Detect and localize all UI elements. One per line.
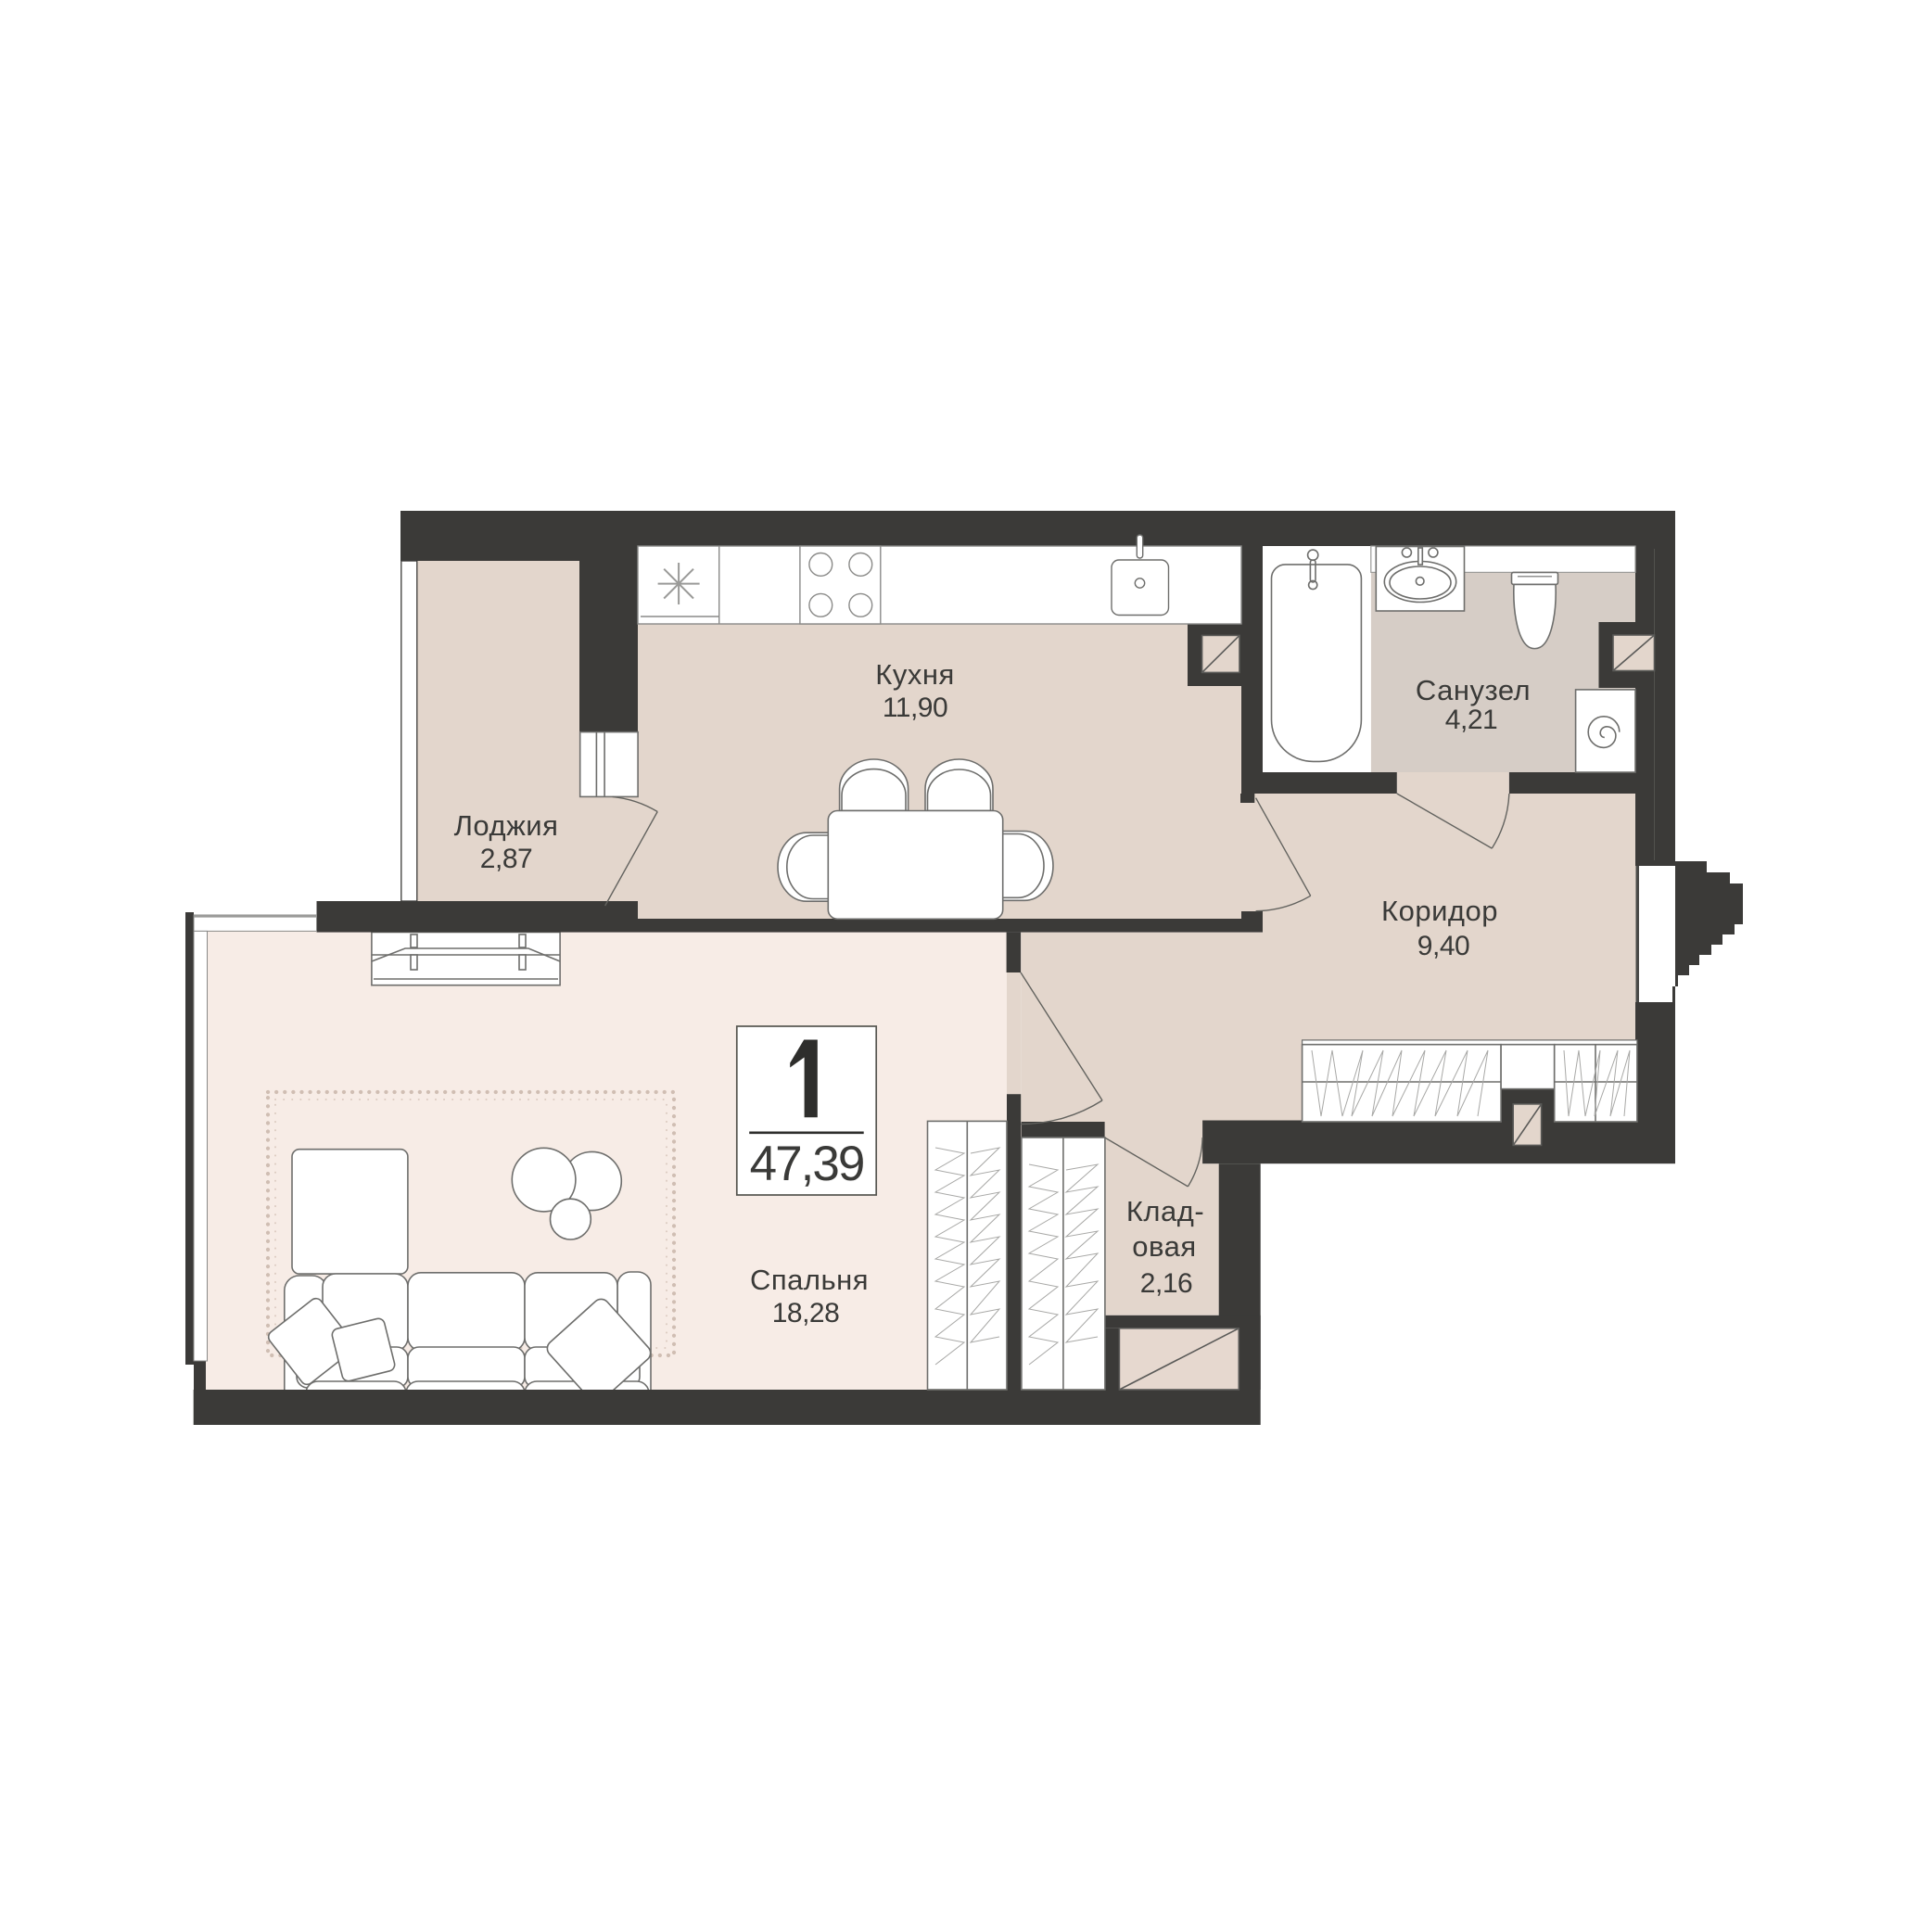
svg-text:47,39: 47,39	[750, 1137, 864, 1191]
svg-text:Лоджия: Лоджия	[454, 809, 559, 842]
svg-text:4,21: 4,21	[1445, 705, 1497, 735]
svg-text:Санузел: Санузел	[1416, 674, 1531, 706]
svg-text:Спальня: Спальня	[750, 1264, 869, 1296]
svg-text:Коридор: Коридор	[1381, 895, 1498, 927]
svg-text:Клад-: Клад-	[1126, 1195, 1204, 1227]
svg-text:2,87: 2,87	[480, 844, 532, 874]
svg-text:Кухня: Кухня	[875, 658, 954, 691]
svg-text:18,28: 18,28	[772, 1298, 840, 1328]
svg-text:овая: овая	[1132, 1230, 1196, 1263]
svg-text:9,40: 9,40	[1417, 931, 1469, 961]
svg-text:11,90: 11,90	[883, 693, 947, 723]
svg-text:2,16: 2,16	[1140, 1268, 1192, 1299]
